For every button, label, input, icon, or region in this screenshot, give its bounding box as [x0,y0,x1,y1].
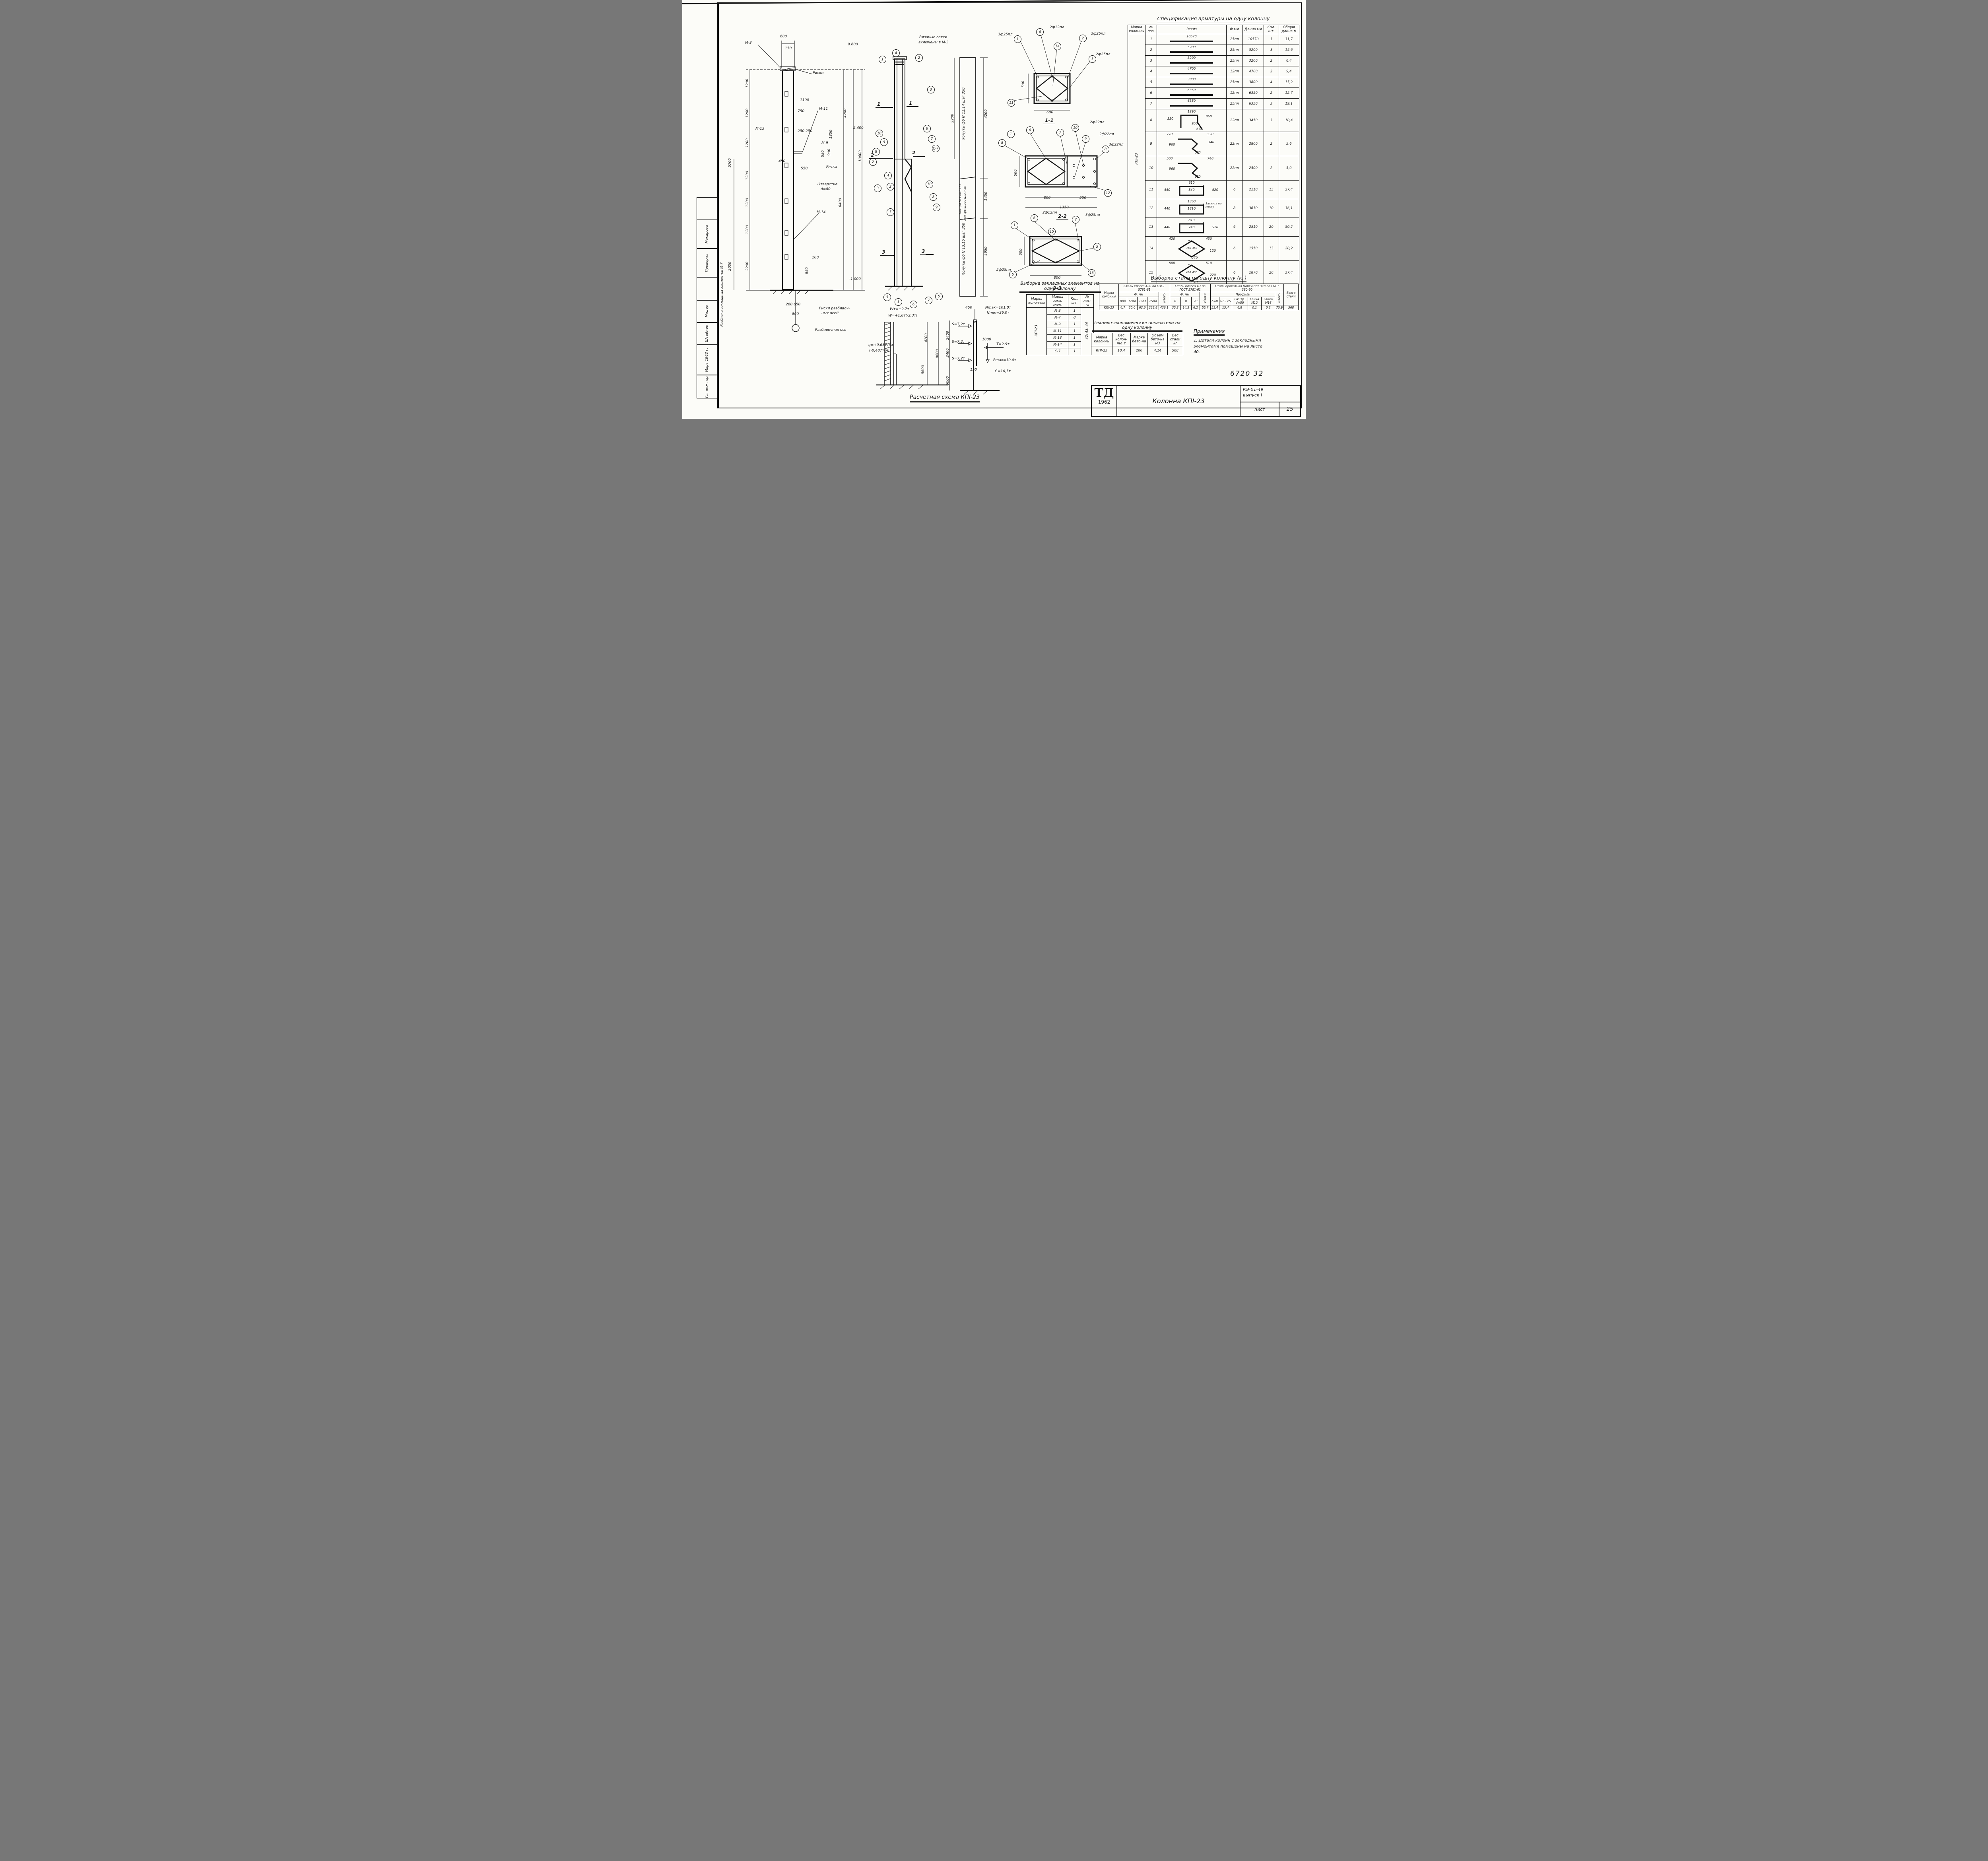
dimension-label: Разбивочная ось [815,328,846,332]
rebar-sketch: 610440540520 [1162,181,1221,198]
rebar-sketch: 4700 [1162,67,1221,76]
column-reinforcement-drawing: 112233Хомуты ф6 N 11,14 шаг 3504200Зам. … [869,36,1004,314]
line [1015,260,1040,272]
spec-col-header: Эскиз [1157,25,1226,34]
callout-balloon: 9 [880,138,888,146]
spec-sketch-cell: 3800 [1157,77,1226,88]
steel-value: 35,2 [1170,305,1180,310]
circle [1066,76,1068,78]
rebar-sketch: 10570 [1162,35,1221,44]
dimension-label: 1100 [800,99,809,102]
steel-table: Марка колонныСталь класса А-III по ГОСТ … [1099,284,1299,310]
callout-balloon: 6 [1026,126,1034,134]
rect [1034,74,1070,103]
line [884,355,891,357]
callout-balloon: 1 [1011,221,1018,229]
tech-col-header: Марка бето-на [1130,333,1148,346]
rect [895,59,905,159]
embed-col-header: Марка колон-ны [1027,295,1047,308]
polygon [1179,241,1204,257]
steel-itogo: Итого [1200,292,1210,305]
spec-dia: 25пл [1226,99,1242,109]
embed-col-header: Марка закл. элем. [1047,295,1068,308]
dimension-label: 800 [792,313,799,316]
dimension-label: Зам. ф8 N12 шаг 150 [959,184,962,215]
calc-scheme: Расчетная схема КПI-23 Wт=±2,7тW=+1,8т(-… [868,306,1019,406]
rebar-sketch-shape [1168,93,1215,97]
circle [792,324,799,332]
spec-len: 6350 [1242,99,1264,109]
spec-sketch-cell: 810440740520 [1157,218,1226,237]
spec-row: 977052096034068022пл280025,6 [1128,132,1299,156]
spec-total: 27,4 [1279,181,1299,199]
spec-row: 6635012пл6350212,7 [1128,88,1299,99]
steel-group-header: Сталь класса А-III по ГОСТ 5781-61 [1119,284,1170,292]
embed-qty: 1 [1068,348,1081,355]
spec-col-header: Кол. шт. [1264,25,1279,34]
dimension-label: М-9 [821,142,828,145]
sketch-dim: 740 [1208,157,1213,160]
spec-qty: 2 [1264,88,1279,99]
spec-col-header: Общая длина м [1279,25,1299,34]
steel-value: 6,8 [1232,305,1248,310]
sketch-dim: 520 [1212,225,1218,229]
spec-dia: 22пл [1226,132,1242,156]
spec-row: 7635025пл6350319,1 [1128,99,1299,109]
spec-sketch-cell: 10570 [1157,34,1226,45]
steel-dia: Гайка М12 [1248,297,1261,305]
line [1020,41,1037,76]
spec-total: 15,6 [1279,45,1299,56]
callout-balloon: 7 [928,135,936,143]
rect [1028,158,1065,185]
callout-balloon: 2 [1079,35,1087,42]
line [884,379,891,381]
div: Технико-экономические показатели на одну… [1091,321,1183,332]
sketch-dim: 500 [1167,157,1173,160]
embed-elem: М-9 [1047,321,1068,328]
embed-elem: М-7 [1047,315,1068,321]
callout-balloon: 11 [1008,99,1015,107]
dimension-label: Зам. ф6 ш.300 N13 и 15 [964,186,967,221]
scan-edge-line [682,0,1306,4]
sketch-dim: 860 [1206,115,1212,118]
elevation-geometry [722,32,873,338]
callout-balloon: 3 [927,86,935,93]
tech-value: 200 [1130,346,1148,355]
tech-table: Марка колонныВес колон-ны, тМарка бето-н… [1091,333,1183,355]
sketch-dim: 420 [1169,237,1175,241]
document-number: 6720 32 [1230,370,1264,378]
load-label: W=+1,8т(-2,3т) [888,314,917,318]
line [797,290,801,294]
spec-dia: 22пл [1226,109,1242,132]
line [983,390,988,394]
spec-pos: 4 [1145,66,1157,77]
itogo-label: Итого [1163,293,1166,303]
spec-total: 5,6 [1279,132,1299,156]
sketch-dim: 3800 [1188,78,1196,81]
callout-balloon: 1 [1014,35,1021,43]
logo-box: ТД 1962 [1092,386,1117,416]
doc-code: КЭ-01-49 выпуск I [1241,386,1300,402]
steel-total-header: Всего стали [1284,284,1299,305]
spec-qty: 13 [1264,181,1279,199]
dimension-label: М-11 [819,107,828,111]
calc-scheme-title: Расчетная схема КПI-23 [910,394,980,402]
callout-balloon: 8 [872,148,880,155]
callout-balloon: 13 [1088,269,1095,277]
stamp-cell [697,277,717,301]
dimension-label: 1200 [746,138,749,148]
sketch-dim: 5200 [1188,45,1196,49]
spec-row: 3320025пл320026,4 [1128,56,1299,66]
column-mark: КПI-23 [1035,325,1039,336]
sketch-dim: 510 [1206,261,1212,265]
steel-dia: Гайка М16 [1262,297,1275,305]
path [1181,115,1202,130]
spec-dia: 25пл [1226,56,1242,66]
title-block: ТД 1962 Колонна КПI-23 КЭ-01-49 выпуск I… [1091,385,1301,417]
dimension-label: 1200 [746,109,749,118]
line [1041,35,1052,76]
spec-dia: 12пл [1226,66,1242,77]
sketch-dim: 3200 [1188,56,1196,60]
sketch-dim: 810 [1188,218,1194,222]
spec-len: 2500 [1242,156,1264,181]
steel-dia: 8пл [1119,297,1127,305]
line [884,367,891,369]
dimension-label: 450 [779,160,785,163]
rect [785,254,788,259]
rect [884,322,891,385]
spec-row: 13810440740520625102050,2 [1128,218,1299,237]
embed-col-header: № лис-та [1081,295,1093,308]
circle [1082,164,1084,166]
spec-qty: 4 [1264,77,1279,88]
rebar-label: 600 [1046,111,1053,115]
spec-total: 9,4 [1279,66,1299,77]
sketch-dim: 120 [1210,249,1216,253]
circle [1037,76,1039,78]
note-text: 1. Детали колонн с закладными элементами… [1194,338,1269,355]
rebar-sketch-shape [1168,39,1215,44]
dimension-label: 750 [798,110,804,113]
spec-len: 3200 [1242,56,1264,66]
embed-elem: М-11 [1047,328,1068,335]
tech-value: 10,4 [1112,346,1130,355]
steel-group-header: Сталь класса А-I по ГОСТ 5781-61 [1170,284,1210,292]
spec-col-header: Длина мм [1242,25,1264,34]
div: Выборка закладных элементов на одну коло… [1018,281,1102,293]
div: Выборка стали на одну колонну (кг) [1099,274,1299,282]
polyline [905,159,911,192]
rebar-label: 2ф22пл [1090,121,1105,124]
spec-total: 20,2 [1279,237,1299,261]
steel-value: 55,7 [1200,305,1210,310]
dimension-label: 550 [801,167,808,171]
spec-len: 3450 [1242,109,1264,132]
spec-qty: 3 [1264,34,1279,45]
dimension-label: Риски [813,72,824,75]
dimension-label: 1350 [829,130,833,139]
rebar-sketch: 3200 [1162,56,1221,66]
load-label: G=10,5т [995,370,1011,373]
spec-sketch-cell: 13604401810Загнуть по месту [1157,199,1226,218]
dimension-label: 2200 [951,114,955,123]
stamp-text: Мидер [705,305,709,317]
spec-sketch-cell: 5200 [1157,45,1226,56]
spec-dia: 6 [1226,237,1242,261]
line [805,290,809,294]
spec-qty: 13 [1264,237,1279,261]
callout-balloon: 6 [1031,214,1038,222]
steel-subheader-row: Ф, ммИтогоФ, ммИтогоПрофильИтого [1099,292,1299,297]
drawing-title: Колонна КПI-23 [1117,386,1240,416]
column-mark: КПI-23 [1135,153,1139,165]
tech-value: 568 [1167,346,1183,355]
line [781,290,785,294]
circle [1028,183,1030,185]
steel-dia: 20 [1191,297,1200,305]
embed-elem: С-7 [1047,348,1068,355]
spec-len: 10570 [1242,34,1264,45]
stamp-strip: МакароваПроверилМидерШтейнерМарт 1962 г.… [697,198,717,398]
steel-value: 75,9 [1275,305,1284,310]
rect [785,163,788,168]
dimension-label: 550 [821,150,825,157]
load-label: 150 [970,368,977,372]
line [884,335,891,337]
spec-sketch-cell: 6350 [1157,88,1226,99]
spec-row: 8129035086095067022пл3450310,4 [1128,109,1299,132]
dimension-label: 100 [812,256,819,260]
callout-balloon: 5 [935,293,943,300]
spec-dia: 25пл [1226,45,1242,56]
line [884,375,891,377]
spec-row: 5380025пл3800415,2 [1128,77,1299,88]
rebar-label: 2ф22пл [1099,133,1114,136]
spec-row: 11610440540520621101327,4 [1128,181,1299,199]
spec-dia: 12пл [1226,88,1242,99]
spec-total: 50,2 [1279,218,1299,237]
rebar-sketch-shape [1176,160,1207,179]
spec-pos: 12 [1145,199,1157,218]
spec-total: 31,7 [1279,34,1299,45]
stamp-text: Март 1962 г. [705,348,709,372]
spec-total: 36,1 [1279,199,1299,218]
spec-pos: 8 [1145,109,1157,132]
sketch-dim: 10570 [1186,35,1196,38]
rebar-sketch-shape [1176,185,1208,197]
embed-table: Марка колон-ныМарка закл. элем.Кол. шт.№… [1026,294,1094,355]
dimension-label: Риски разбивоч- [819,307,850,311]
circle [1077,239,1079,241]
polyline [1178,139,1199,153]
rebar-sketch: 500740960680 [1162,157,1221,180]
section-2-2: 2ф22пл2ф22пл3ф22пл50080055013502-2816710… [990,119,1128,221]
div: Спецификация арматуры на одну колонну [1128,14,1299,23]
rebar-sketch: 3800 [1162,78,1221,87]
embed-qty: 1 [1068,328,1081,335]
rebar-sketch-shape [1176,136,1207,154]
line [795,69,812,74]
spec-sketch-cell: 4700 [1157,66,1226,77]
embed-table-title: Выборка закладных элементов на одну коло… [1019,281,1101,293]
spec-len: 2800 [1242,132,1264,156]
rebar-label: 2ф25пл [1096,53,1110,56]
steel-dia: ∟63×5 [1219,297,1232,305]
line [899,385,904,389]
dimension-label: 2000 [728,262,732,271]
dimension-label: 1 [876,102,882,108]
steel-value: 30,0 [1127,305,1137,310]
spec-sketch-cell: 1290350860950670 [1157,109,1226,132]
tech-table-region: Технико-экономические показатели на одну… [1091,321,1183,355]
dimension-label: Хомуты ф6 N 13,15 шаг 350 [962,223,966,275]
callout-balloon: 5 [887,208,894,216]
steel-dia: 25пл [1147,297,1159,305]
embed-header-row: Марка колон-ныМарка закл. элем.Кол. шт.№… [1027,295,1094,308]
spec-len: 3800 [1242,77,1264,88]
rect [785,91,788,96]
circle [1082,176,1084,178]
tech-value: КПI-23 [1091,346,1112,355]
dimension-label: 1200 [746,225,749,234]
dimension-label: Риска [826,165,837,169]
callout-balloon: 8 [998,139,1006,147]
rebar-sketch: 6350 [1162,88,1221,98]
spec-row: КПI-2311057025пл10570331,7 [1128,34,1299,45]
embed-qty: 1 [1068,321,1081,328]
circle [1063,183,1065,185]
load-label: 4200 [925,333,928,342]
sketch-dim: 340 [1208,140,1214,144]
spec-qty: 3 [1264,99,1279,109]
rebar-label: 3ф25пл [1091,32,1106,36]
line [1076,131,1083,165]
load-label: T=2,9т [996,343,1010,346]
spec-pos: 7 [1145,99,1157,109]
spec-table-title: Спецификация арматуры на одну колонну [1157,16,1270,23]
line [1005,146,1029,159]
elevation-drawing: 600150М-3Риски9.6001200120012001100750М-… [722,32,873,338]
steel-value: 4,7 [1119,305,1127,310]
dimension-label: 150 [785,47,792,51]
sketch-dim: 4700 [1188,67,1196,70]
steel-subgroup: Профиль [1211,292,1275,297]
dimension-label: 4950 [984,247,988,256]
stamp-text: Проверил [705,254,709,272]
callout-balloon: 7 [1056,129,1064,136]
dimension-label: 1450 [984,192,988,201]
steel-value: 6,2 [1191,305,1200,310]
line [1060,136,1068,167]
steel-dia: Газ.тр. d=50 [1232,297,1248,305]
dimension-label: 4200 [844,109,847,118]
spec-pos: 2 [1145,45,1157,56]
steel-dia-row: 8пл12пл22пл25пл6820δ=8∟63×5Газ.тр. d=50Г… [1099,297,1299,305]
sketch-dim: 960 [1169,143,1175,146]
callout-balloon: 4 [1036,28,1044,36]
circle [1093,158,1095,160]
stamp-text: Штейнер [705,325,709,342]
rebar-label: 500 [1019,249,1023,255]
steel-subgroup: Ф, мм [1119,292,1159,297]
steel-table-title: Выборка стали на одну колонну (кг) [1151,275,1247,282]
steel-value: 568 [1284,305,1299,310]
rebar-sketch: 420430350 350270120 [1162,237,1221,260]
spec-len: 1550 [1242,237,1264,261]
rebar-sketch: 810440740520 [1162,218,1221,236]
line [1069,60,1091,89]
steel-value: 15,4 [1219,305,1232,310]
callout-balloon: 3 [874,185,881,192]
line [884,327,891,329]
spec-dia: 22пл [1226,156,1242,181]
dimension-label: 4200 [984,109,988,118]
sketch-dim: 6350 [1188,99,1196,103]
sketch-dim: 350 [1167,117,1173,120]
callout-balloon: 12 [1104,189,1112,197]
sketch-dim: 520 [1208,132,1213,136]
steel-data-row: КПI-234,730,062,6338,8436,135,214,36,255… [1099,305,1299,310]
rebar-sketch: 770520960340680 [1162,132,1221,155]
spec-len: 2510 [1242,218,1264,237]
line [888,286,892,290]
circle [1093,183,1095,185]
load-label: S=7,2т [952,357,965,361]
rebar-sketch: 1290350860950670 [1162,110,1221,131]
circle [1037,99,1039,101]
spec-dia: 25пл [1226,34,1242,45]
doc-code-line1: КЭ-01-49 [1243,387,1263,392]
steel-subgroup: Ф, мм [1170,292,1200,297]
rebar-sketch-shape [1177,240,1206,258]
sketch-dim: 610 [1188,181,1194,185]
stamp-cell: Проверил [697,248,717,278]
tech-col-header: Объем бето-на м3 [1148,333,1167,346]
callout-balloon: 4 [892,49,900,57]
steel-header-row: Марка колонныСталь класса А-III по ГОСТ … [1099,284,1299,292]
steel-itogo: Итого [1275,292,1284,305]
load-label: 450 [965,306,972,310]
spec-row: 1213604401810Загнуть по месту836101036,1 [1128,199,1299,218]
spec-total: 10,4 [1279,109,1299,132]
spec-len: 5200 [1242,45,1264,56]
line [960,218,976,220]
dimension-label: 600 [780,35,787,39]
steel-value: 14,3 [1180,305,1191,310]
sketch-dim: 440 [1164,188,1170,192]
sketch-dim: 440 [1164,225,1170,229]
spec-len: 6350 [1242,88,1264,99]
callout-balloon: 4 [884,172,892,179]
tech-col-header: Вес стали кг [1167,333,1183,346]
callout-balloon: 2 [887,183,894,190]
embed-qty: 8 [1068,315,1081,321]
stamp-text: Макарова [705,225,709,243]
line [912,286,916,290]
line [773,290,777,294]
line [884,339,891,341]
spec-pos: 5 [1145,77,1157,88]
tech-data-row: КПI-2310,42004,14568 [1091,346,1183,355]
steel-itogo: Итого [1159,292,1170,305]
steel-value: 436,1 [1159,305,1170,310]
rebar-sketch-shape [1168,82,1215,87]
sheet-number: 25 [1279,402,1300,416]
